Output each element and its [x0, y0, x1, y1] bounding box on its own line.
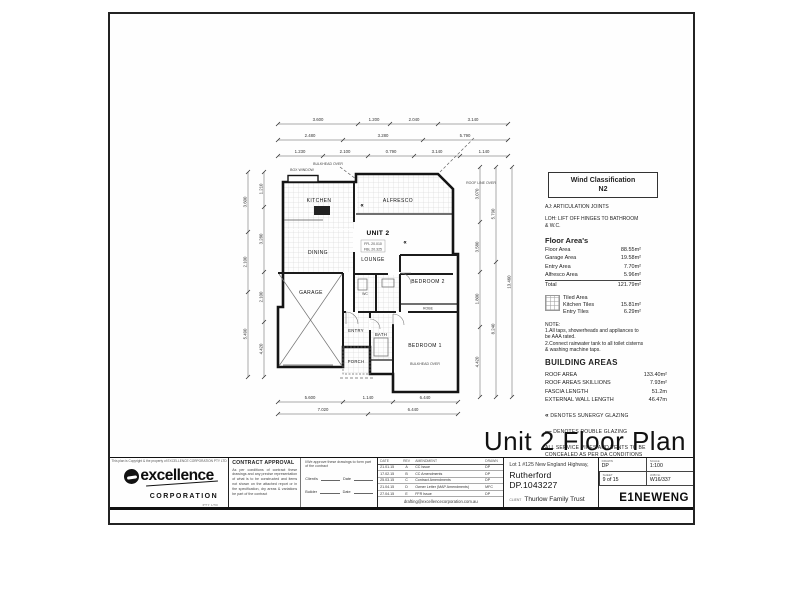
title-block: This plan is Copyright & the property of…: [110, 457, 693, 510]
client-label: Client/s: [305, 477, 318, 481]
floor-area-total-row: Total 121.79m²: [545, 282, 641, 289]
revision-date: 21.04.15: [378, 484, 400, 491]
client-signature-line: [321, 476, 340, 481]
boxwindow-annotation: BOX WINDOW: [290, 168, 314, 172]
sunergy-glazing-text: DENOTES SUNERGY GLAZING: [550, 413, 628, 419]
dim-value: 2.100: [340, 149, 351, 154]
builder-signature-row: Builder Date: [305, 489, 373, 494]
dim-value: 4.420: [259, 343, 264, 354]
revision-rev: C: [400, 477, 413, 484]
floor-area-label: Garage Area: [545, 255, 576, 262]
drafting-email: drafting@excellencecorporation.com.au: [378, 499, 503, 504]
logo-subtitle: CORPORATION PTY LTD: [110, 483, 228, 507]
project-section: Lot 1 #125 New England Highway, Rutherfo…: [504, 458, 598, 507]
tiled-area-title: Tiled Area: [563, 295, 641, 302]
sunergy-glazing-symbol: «: [545, 412, 549, 419]
dim-value: 3.580: [475, 241, 480, 252]
floor-area-row: Floor Area 88.55m²: [545, 247, 641, 254]
fbl-annotation: FBL 20.325: [364, 248, 382, 252]
dim-value: 1.210: [259, 183, 264, 194]
loh-note: LOH: LIFT OFF HINGES TO BATHROOM & W.C.: [545, 216, 640, 229]
drawing-code: E1NEWENG: [619, 492, 689, 504]
tile-label: Kitchen Tiles: [563, 302, 594, 309]
wind-classification-box: Wind Classification N2: [548, 172, 658, 198]
bulkhead-annotation-2: BULKHEAD OVER: [410, 362, 440, 366]
tile-swatch-icon: [545, 295, 560, 311]
company-logo: excellence: [110, 467, 228, 485]
client-row: CLIENT Thurlow Family Trust: [509, 496, 592, 503]
floor-areas-heading: Floor Area's: [545, 236, 685, 245]
room-label-bedroom2: BEDROOM 2: [411, 279, 445, 285]
building-area-row: FASCIA LENGTH 51.2m: [545, 389, 667, 396]
builder-label: Builder: [305, 490, 317, 494]
dim-value: 13.460: [507, 275, 512, 289]
revision-desc: Owner Letter (MAP Amendments): [413, 484, 483, 491]
dim-value: 3.600: [243, 196, 248, 207]
dim-value: 2.480: [305, 133, 316, 138]
tile-value: 15.81m²: [621, 302, 641, 309]
builder-signature-line: [320, 489, 340, 494]
building-area-value: 7.93m²: [650, 380, 667, 387]
copyright-line: This plan is Copyright & the property of…: [110, 458, 228, 463]
dim-value: 3.140: [468, 117, 479, 122]
revision-drawn: DP: [483, 471, 503, 478]
wind-classification-title: Wind Classification: [551, 176, 655, 185]
logo-ptyltd: PTY LTD: [110, 503, 218, 507]
wind-classification-value: N2: [551, 185, 655, 194]
dim-value: 6.440: [420, 395, 431, 400]
client-field-label: CLIENT: [509, 498, 521, 502]
dim-value: 5.790: [491, 208, 496, 219]
drawn-value: DP: [602, 463, 643, 469]
revision-row: 21.04.15 D Owner Letter (MAP Amendments)…: [378, 484, 503, 491]
revision-desc: FFR Issue: [413, 490, 483, 497]
tile-row: Kitchen Tiles 15.81m²: [563, 302, 641, 309]
building-area-value: 46.47m: [649, 397, 667, 404]
floor-area-value: 88.55m²: [621, 247, 641, 254]
floor-area-value: 5.96m²: [624, 272, 641, 279]
dim-value: 1.230: [295, 149, 306, 154]
revision-desc: Contract Amendments: [413, 477, 483, 484]
floor-area-value: 19.58m²: [621, 255, 641, 262]
glazing-mark: «: [403, 240, 407, 246]
revision-row: 17.02.15 B CC Amendments DP: [378, 471, 503, 478]
job-value: W16/337: [650, 477, 690, 483]
revision-rev: E: [400, 490, 413, 497]
note-line: 1.All taps, showerheads and appliances t…: [545, 328, 645, 341]
revision-row: 25.03.15 C Contract Amendments DP: [378, 477, 503, 484]
client-signature-row: Client/s Date: [305, 476, 373, 481]
dim-value: 3.140: [432, 149, 443, 154]
floor-area-row: Garage Area 19.58m²: [545, 255, 641, 262]
dim-value: 5.600: [305, 395, 316, 400]
meta-section: DRAWN DP SCALE 1:100 SHEET 9 of 15 JOB N…: [599, 458, 693, 507]
revision-desc: CC Amendments: [413, 471, 483, 478]
dim-value: 3.280: [378, 133, 389, 138]
floor-area-label: Entry Area: [545, 264, 571, 271]
revision-rev: D: [400, 484, 413, 491]
building-areas-heading: BUILDING AREAS: [545, 358, 685, 368]
tile-value: 6.29m²: [624, 309, 641, 316]
room-label-garage: GARAGE: [299, 290, 323, 296]
building-area-value: 51.2m: [652, 389, 667, 396]
dim-value: 2.100: [243, 256, 248, 267]
floor-area-row: Alfresco Area 5.96m²: [545, 272, 641, 281]
room-label-bath: BATH: [375, 332, 387, 337]
building-area-row: ROOF AREAS SKILLIONS 7.93m²: [545, 380, 667, 387]
floor-area-row: Entry Area 7.70m²: [545, 264, 641, 271]
building-area-label: ROOF AREAS SKILLIONS: [545, 380, 611, 387]
room-label-wc: WC: [362, 292, 368, 296]
tile-label: Entry Tiles: [563, 309, 589, 316]
unit-label: UNIT 2: [367, 230, 390, 237]
room-label-dining: DINING: [308, 250, 328, 256]
dim-value: 3.280: [259, 233, 264, 244]
dim-value: 8.240: [491, 323, 496, 334]
scale-value: 1:100: [650, 463, 690, 469]
drawing-sheet: 3.600 1.200 2.040 3.140 2.480 3.280 5.79…: [108, 12, 695, 525]
building-area-label: ROOF AREA: [545, 372, 577, 379]
dim-value: 5.790: [460, 133, 471, 138]
contract-approval-text: CONTRACT APPROVAL As per conditions of c…: [229, 458, 301, 507]
floor-area-value: 121.79m²: [618, 282, 641, 289]
dim-value: 3.600: [313, 117, 324, 122]
revision-rev: A: [400, 464, 413, 471]
signature-area: I/We approve these drawings to form part…: [301, 458, 377, 507]
contract-approval-heading: CONTRACT APPROVAL: [232, 460, 297, 466]
client-date-line: [354, 476, 373, 481]
building-area-row: ROOF AREA 133.40m²: [545, 372, 667, 379]
revision-table: DATE REV AMENDMENT DRAWN 21.01.15 A CC I…: [378, 458, 503, 497]
revision-rev: B: [400, 471, 413, 478]
floor-area-value: 7.70m²: [624, 264, 641, 271]
revision-date: 21.01.15: [378, 464, 400, 471]
revision-date: 17.02.15: [378, 471, 400, 478]
revision-drawn: DP: [483, 464, 503, 471]
room-label-kitchen: KITCHEN: [307, 198, 332, 204]
dim-value: 5.490: [243, 328, 248, 339]
aj-note: AJ: ARTICULATION JOINTS: [545, 204, 640, 210]
sheet-value: 9 of 15: [603, 477, 643, 483]
drawn-cell: DRAWN DP: [599, 458, 646, 472]
builder-date-line: [354, 489, 374, 494]
dim-value: 0.790: [386, 149, 397, 154]
site-address-line2: Rutherford DP.1043227: [509, 470, 592, 490]
notes-panel: Wind Classification N2 AJ: ARTICULATION …: [545, 172, 685, 458]
dim-value: 6.440: [408, 407, 419, 412]
floor-area-label: Alfresco Area: [545, 272, 578, 279]
revision-row: 27.04.15 E FFR Issue DP: [378, 490, 503, 497]
dim-value: 1.200: [369, 117, 380, 122]
note-block: NOTE: 1.All taps, showerheads and applia…: [545, 322, 645, 353]
building-area-value: 133.40m²: [644, 372, 667, 379]
date-label: Date: [343, 477, 351, 481]
note-line: 2.Connect rainwater tank to all toilet c…: [545, 341, 645, 354]
garage-cross-lines: [279, 274, 342, 366]
building-area-label: FASCIA LENGTH: [545, 389, 588, 396]
revision-drawn: MFC: [483, 484, 503, 491]
approve-note: I/We approve these drawings to form part…: [305, 460, 373, 468]
dim-value: 4.420: [475, 356, 480, 367]
roofline-annotation: ROOF LINE OVER: [466, 181, 496, 185]
room-label-bedroom1: BEDROOM 1: [408, 343, 442, 349]
dim-value: 3.070: [475, 188, 480, 199]
room-label-alfresco: ALFRESCO: [383, 198, 413, 204]
client-name: Thurlow Family Trust: [524, 496, 584, 503]
logo-section: This plan is Copyright & the property of…: [110, 458, 229, 507]
scale-cell: SCALE 1:100: [646, 458, 693, 472]
contract-approval-body: As per conditions of contract these draw…: [232, 468, 297, 497]
tiled-legend: Tiled Area Kitchen Tiles 15.81m² Entry T…: [545, 295, 685, 316]
floor-area-label: Total: [545, 282, 557, 289]
revision-desc: CC Issue: [413, 464, 483, 471]
page-title: Unit 2 Floor Plan: [484, 426, 686, 457]
dim-value: 7.020: [318, 407, 329, 412]
ffl-annotation: FFL 20.010: [364, 242, 382, 246]
room-label-porch: PORCH: [348, 359, 365, 364]
sheet-cell: SHEET 9 of 15: [599, 472, 646, 486]
logo-corporation: CORPORATION: [150, 493, 218, 500]
revision-section: DATE REV AMENDMENT DRAWN 21.01.15 A CC I…: [378, 458, 504, 507]
dim-value: 2.040: [409, 117, 420, 122]
revision-row: 21.01.15 A CC Issue DP: [378, 464, 503, 471]
floor-area-label: Floor Area: [545, 247, 570, 254]
dim-value: 1.140: [363, 395, 374, 400]
sunergy-glazing-note: « DENOTES SUNERGY GLAZING: [545, 412, 685, 420]
contract-approval-section: CONTRACT APPROVAL As per conditions of c…: [229, 458, 378, 507]
revision-drawn: DP: [483, 477, 503, 484]
site-address-line1: Lot 1 #125 New England Highway,: [509, 462, 592, 468]
building-areas-rows: ROOF AREA 133.40m² ROOF AREAS SKILLIONS …: [545, 372, 685, 404]
floor-plan-drawing: 3.600 1.200 2.040 3.140 2.480 3.280 5.79…: [228, 62, 533, 427]
tile-row: Entry Tiles 6.29m²: [563, 309, 641, 316]
dim-value: 1.800: [475, 293, 480, 304]
room-label-entry: ENTRY: [348, 328, 364, 333]
date-label: Date: [343, 490, 351, 494]
building-area-row: EXTERNAL WALL LENGTH 46.47m: [545, 397, 667, 404]
dim-value: 1.140: [479, 149, 490, 154]
room-label-robe: ROBE: [423, 307, 434, 311]
building-area-label: EXTERNAL WALL LENGTH: [545, 397, 614, 404]
bulkhead-annotation: BULKHEAD OVER: [313, 162, 343, 166]
dim-value: 2.100: [259, 291, 264, 302]
revision-date: 25.03.15: [378, 477, 400, 484]
revision-drawn: DP: [483, 490, 503, 497]
revision-date: 27.04.15: [378, 490, 400, 497]
job-cell: JOB No W16/337: [646, 472, 693, 486]
meta-grid: DRAWN DP SCALE 1:100 SHEET 9 of 15 JOB N…: [599, 458, 693, 486]
excellence-logo-icon: [124, 469, 139, 484]
room-label-lounge: LOUNGE: [361, 257, 385, 263]
